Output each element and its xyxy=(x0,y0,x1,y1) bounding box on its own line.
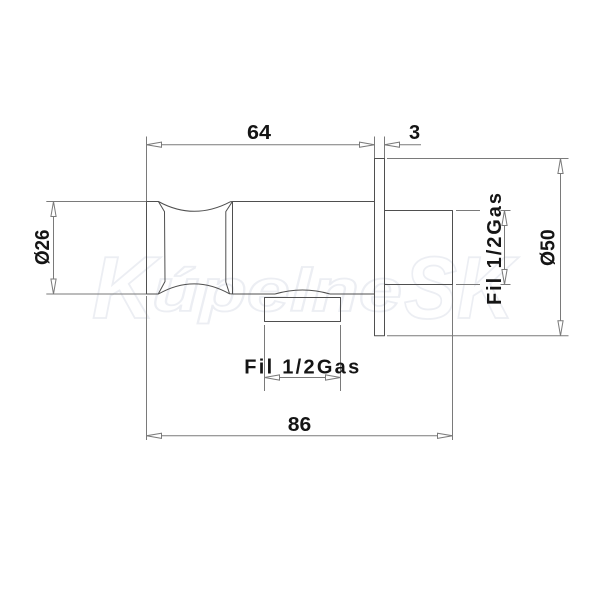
svg-text:Ø26: Ø26 xyxy=(32,230,54,266)
svg-text:86: 86 xyxy=(288,414,312,436)
svg-text:3: 3 xyxy=(409,122,420,144)
svg-text:úpelne: úpelne xyxy=(152,257,402,324)
svg-text:Ø50: Ø50 xyxy=(537,229,559,266)
svg-text:64: 64 xyxy=(247,122,272,144)
svg-text:K: K xyxy=(92,238,161,337)
